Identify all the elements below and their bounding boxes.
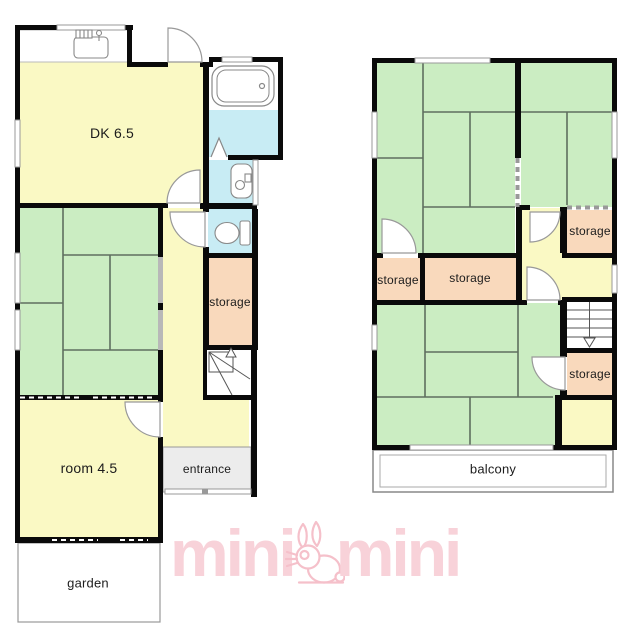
watermark: mini mini bbox=[170, 519, 459, 586]
toilet-icon bbox=[215, 221, 250, 245]
storage-lower-right-label: storage bbox=[569, 367, 610, 381]
storage-middle-label: storage bbox=[449, 271, 490, 285]
storage-upper-right-label: storage bbox=[569, 224, 610, 238]
entrance-label: entrance bbox=[183, 462, 231, 476]
balcony-label: balcony bbox=[470, 462, 516, 477]
garden-label: garden bbox=[67, 576, 109, 591]
bathtub-icon bbox=[212, 66, 274, 106]
watermark-word-left: mini bbox=[170, 520, 294, 586]
back-door-arc bbox=[168, 28, 202, 62]
room45-label: room 4.5 bbox=[61, 460, 118, 476]
washbasin-icon bbox=[231, 164, 252, 198]
staircase-down-icon bbox=[567, 302, 612, 348]
dk-room-label: DK 6.5 bbox=[90, 125, 134, 141]
watermark-word-right: mini bbox=[336, 520, 460, 586]
floor-plan: DK 6.5 storage room 4.5 entrance garden … bbox=[0, 0, 629, 640]
storage-label-floor1: storage bbox=[209, 295, 250, 309]
storage-left-label: storage bbox=[377, 273, 418, 287]
staircase-up-icon bbox=[207, 348, 251, 395]
